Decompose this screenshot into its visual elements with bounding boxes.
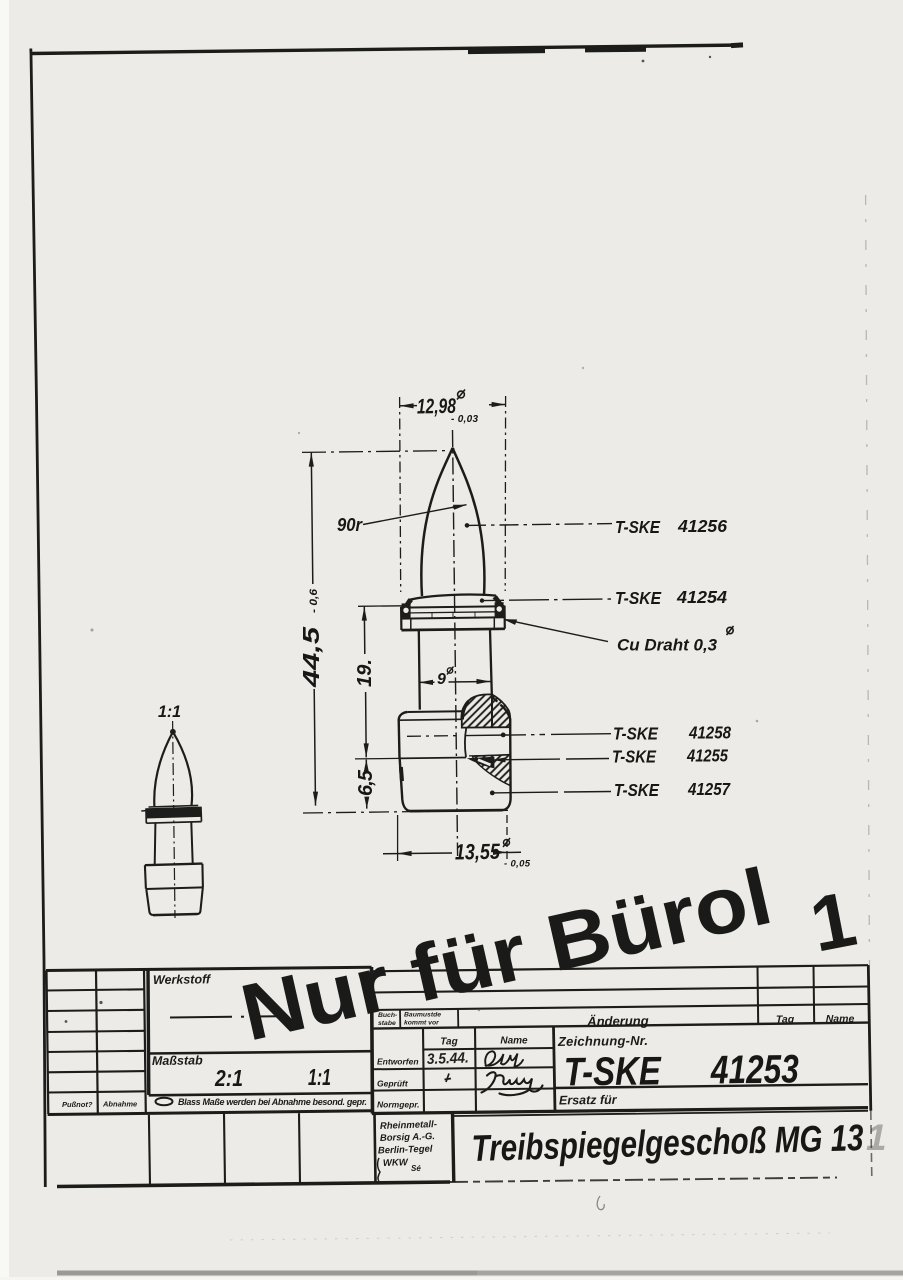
svg-text:T-SKE: T-SKE bbox=[613, 724, 659, 744]
svg-text:41255: 41255 bbox=[686, 746, 728, 766]
svg-text:- 0,6: - 0,6 bbox=[308, 588, 320, 613]
svg-text:T-SKE: T-SKE bbox=[564, 1049, 663, 1094]
svg-text:T-SKE: T-SKE bbox=[615, 588, 662, 608]
svg-text:T-SKE: T-SKE bbox=[615, 517, 661, 537]
svg-text:9: 9 bbox=[437, 671, 446, 688]
svg-text:41257: 41257 bbox=[687, 779, 731, 799]
svg-text:- 0,05: - 0,05 bbox=[504, 859, 531, 870]
svg-text:Berlin-Tegel: Berlin-Tegel bbox=[378, 1144, 433, 1157]
svg-text:Werkstoff: Werkstoff bbox=[153, 972, 212, 987]
svg-text:19.: 19. bbox=[354, 659, 376, 687]
svg-text:Abnahme: Abnahme bbox=[102, 1100, 137, 1109]
svg-text:- 0,03: - 0,03 bbox=[451, 414, 478, 425]
svg-text:Pußnot?: Pußnot? bbox=[62, 1100, 93, 1109]
svg-text:WKW: WKW bbox=[383, 1157, 409, 1169]
svg-text:41254: 41254 bbox=[676, 587, 727, 607]
svg-text:T-SKE: T-SKE bbox=[614, 780, 660, 800]
svg-text:Rheinmetall-: Rheinmetall- bbox=[380, 1119, 437, 1132]
svg-text:Borsig A.-G.: Borsig A.-G. bbox=[380, 1131, 435, 1144]
svg-text:Cu Draht 0,3: Cu Draht 0,3 bbox=[617, 636, 718, 655]
svg-text:Ersatz für: Ersatz für bbox=[559, 1093, 618, 1108]
svg-text:Änderung: Änderung bbox=[586, 1013, 649, 1029]
svg-text:Entworfen: Entworfen bbox=[377, 1057, 419, 1067]
svg-text:T-SKE: T-SKE bbox=[612, 747, 657, 767]
svg-text:Sé: Sé bbox=[411, 1164, 421, 1173]
svg-text:1:1: 1:1 bbox=[158, 702, 181, 721]
svg-text:13,55: 13,55 bbox=[455, 839, 501, 865]
svg-text:Maßstab: Maßstab bbox=[152, 1053, 203, 1068]
svg-text:1:1: 1:1 bbox=[308, 1064, 331, 1090]
svg-text:41258: 41258 bbox=[688, 723, 731, 743]
svg-text:Name: Name bbox=[500, 1036, 528, 1047]
svg-text:2:1: 2:1 bbox=[214, 1065, 243, 1091]
svg-text:3.5.44.: 3.5.44. bbox=[427, 1050, 470, 1068]
svg-text:Normgepr.: Normgepr. bbox=[377, 1100, 420, 1110]
svg-text:Zeichnung-Nr.: Zeichnung-Nr. bbox=[557, 1033, 648, 1049]
svg-text:Tag: Tag bbox=[776, 1014, 795, 1026]
svg-text:41256: 41256 bbox=[677, 516, 727, 536]
svg-text:Blass Maße werden bei Abnahme: Blass Maße werden bei Abnahme besond. ge… bbox=[178, 1097, 367, 1107]
svg-text:6,5: 6,5 bbox=[355, 769, 377, 796]
svg-text:Tag: Tag bbox=[440, 1037, 457, 1048]
svg-text:41253: 41253 bbox=[710, 1047, 799, 1092]
svg-text:1: 1 bbox=[866, 1117, 887, 1158]
svg-text:44,5: 44,5 bbox=[298, 625, 324, 688]
svg-text:Name: Name bbox=[826, 1013, 855, 1025]
svg-text:90r: 90r bbox=[337, 515, 363, 535]
svg-text:Geprüft: Geprüft bbox=[377, 1079, 409, 1089]
